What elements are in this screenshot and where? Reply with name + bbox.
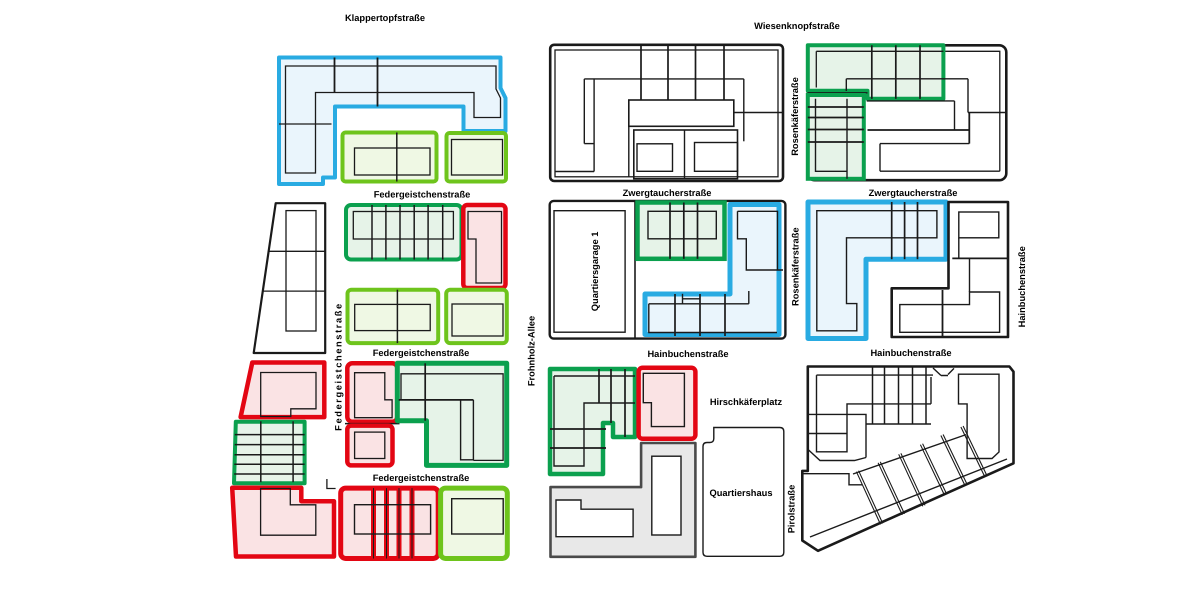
svg-text:Quartiershaus: Quartiershaus (709, 488, 772, 498)
svg-text:Quartiersgarage 1: Quartiersgarage 1 (590, 232, 600, 312)
svg-text:Zwergtaucherstraße: Zwergtaucherstraße (869, 188, 958, 198)
svg-text:Federgeistchenstraße: Federgeistchenstraße (373, 348, 470, 358)
svg-text:Federgeistchenstraße: Federgeistchenstraße (333, 302, 343, 431)
svg-text:Rosenkäferstraße: Rosenkäferstraße (790, 227, 800, 306)
svg-text:Rosenkäferstraße: Rosenkäferstraße (790, 77, 800, 156)
svg-text:Zwergtaucherstraße: Zwergtaucherstraße (623, 188, 712, 198)
svg-text:Hainbuchenstraße: Hainbuchenstraße (647, 349, 728, 359)
svg-text:Wiesenknopfstraße: Wiesenknopfstraße (754, 21, 840, 31)
svg-text:Federgeistchenstraße: Federgeistchenstraße (374, 189, 471, 199)
svg-text:Frohnholz-Allee: Frohnholz-Allee (526, 316, 536, 386)
svg-text:Hainbuchenstraße: Hainbuchenstraße (1017, 246, 1027, 327)
svg-text:Hainbuchenstraße: Hainbuchenstraße (870, 348, 951, 358)
svg-text:Pirolstraße: Pirolstraße (786, 485, 796, 534)
svg-text:Hirschkäferplatz: Hirschkäferplatz (710, 397, 783, 407)
svg-text:Klappertopfstraße: Klappertopfstraße (345, 13, 425, 23)
svg-text:Federgeistchenstraße: Federgeistchenstraße (373, 473, 470, 483)
